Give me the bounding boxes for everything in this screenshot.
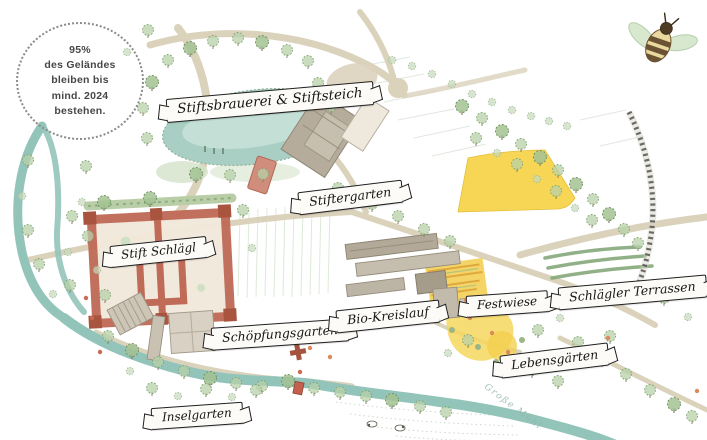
cross-flowerbed — [289, 343, 308, 362]
badge-line: mind. 2024 — [52, 89, 109, 104]
preservation-badge: 95% des Geländes bleiben bis mind. 2024 … — [16, 22, 144, 140]
bee-icon — [614, 0, 706, 84]
site-map: 95% des Geländes bleiben bis mind. 2024 … — [0, 0, 707, 440]
label-text: Stift Schlägl — [121, 240, 197, 262]
label-text: Bio-Kreislauf — [347, 304, 430, 328]
badge-line: bleiben bis — [51, 73, 109, 88]
field-hatching — [362, 57, 644, 156]
badge-line: des Geländes — [44, 58, 115, 73]
cow-figures — [367, 421, 405, 431]
label-text: Schöpfungsgarten — [222, 322, 338, 345]
chapel-building — [293, 381, 304, 395]
badge-line: 95% — [69, 43, 91, 58]
railway-line — [629, 112, 653, 302]
terrace-rows — [545, 247, 652, 278]
label-text: Festwiese — [477, 294, 538, 312]
label-text: Inselgarten — [162, 406, 232, 425]
badge-line: bestehen. — [54, 104, 105, 119]
